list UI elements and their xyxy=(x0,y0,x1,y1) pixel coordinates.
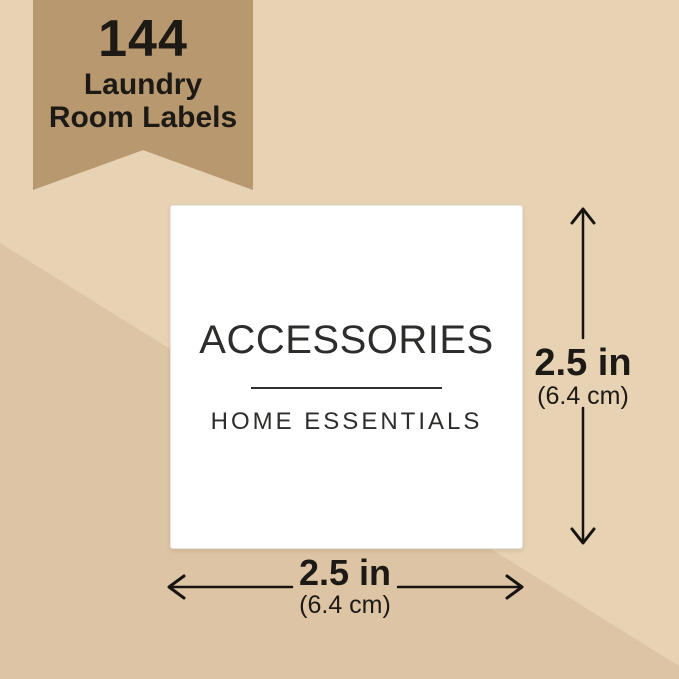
label-divider xyxy=(251,387,442,389)
label-card: ACCESSORIES HOME ESSENTIALS xyxy=(170,205,523,549)
label-count: 144 xyxy=(98,10,188,68)
product-image: 144 Laundry Room Labels ACCESSORIES HOME… xyxy=(0,0,679,679)
count-ribbon: 144 Laundry Room Labels xyxy=(33,0,253,190)
label-count-line3: Room Labels xyxy=(49,101,237,134)
height-metric: (6.4 cm) xyxy=(513,383,653,409)
height-dimension: 2.5 in (6.4 cm) xyxy=(513,344,653,409)
width-dimension: 2.5 in (6.4 cm) xyxy=(265,555,425,618)
width-value: 2.5 in xyxy=(265,555,425,591)
width-metric: (6.4 cm) xyxy=(265,592,425,618)
arrow-up-icon xyxy=(572,209,594,223)
label-title: ACCESSORIES xyxy=(199,320,493,360)
arrow-down-icon xyxy=(572,529,594,543)
label-subtitle: HOME ESSENTIALS xyxy=(211,410,483,434)
label-count-line2: Laundry xyxy=(84,68,202,101)
height-value: 2.5 in xyxy=(513,344,653,382)
